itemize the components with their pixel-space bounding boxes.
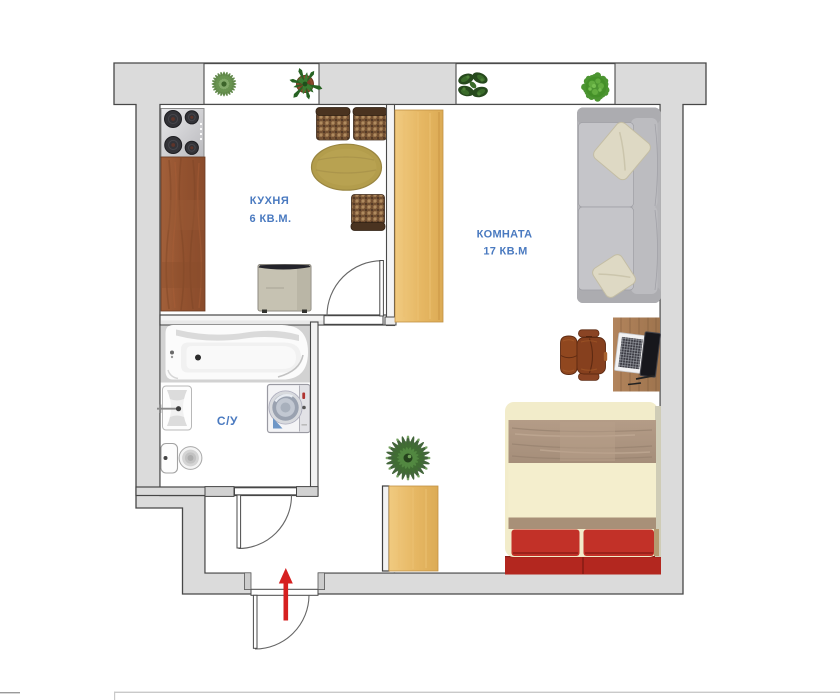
svg-text:КОМНАТА: КОМНАТА [477,228,533,240]
svg-text:КУХНЯ: КУХНЯ [250,195,290,207]
svg-text:С/У: С/У [217,414,238,428]
svg-text:17 КВ.М: 17 КВ.М [483,246,527,258]
svg-text:6 КВ.М.: 6 КВ.М. [250,213,292,225]
